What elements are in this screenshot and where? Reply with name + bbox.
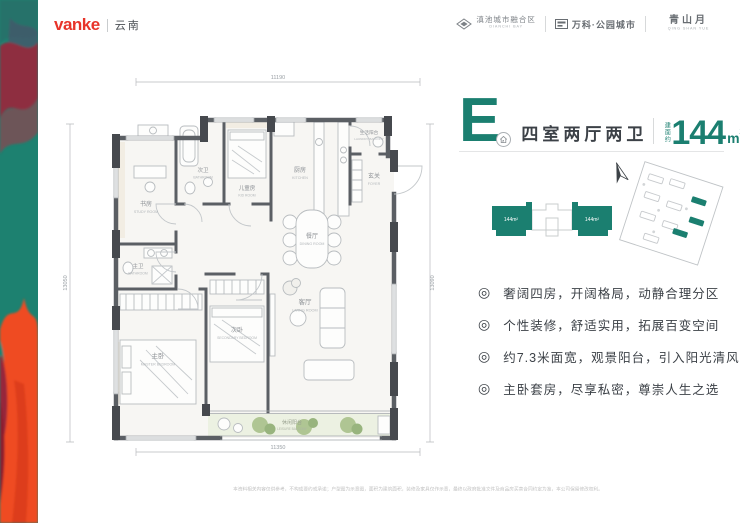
furniture-foyer-cabinet: [352, 160, 362, 202]
svg-text:主卫: 主卫: [132, 262, 144, 270]
svg-text:KID ROOM: KID ROOM: [238, 194, 255, 198]
dim-right: 13090: [430, 275, 436, 290]
vanke-logo: vanke: [54, 15, 100, 35]
unit-letter: E: [459, 94, 498, 148]
area-brand: 滇池城市融合区 DIANCHI BAY: [456, 16, 536, 32]
area-brand-title: 滇池城市融合区: [476, 16, 536, 25]
header-divider: [645, 16, 646, 32]
svg-text:儿童房: 儿童房: [239, 184, 256, 192]
project-logo-icon: [555, 19, 568, 29]
feature-text: 个性装修，舒适实用，拓展百变空间: [503, 315, 719, 334]
furniture-planter: [378, 416, 390, 434]
svg-text:SECONDARY BEDROOM: SECONDARY BEDROOM: [217, 336, 257, 340]
unit-headline: E 四室两厅两卫 建面约 144 m 2: [459, 94, 740, 148]
svg-text:餐厅: 餐厅: [306, 232, 318, 240]
svg-text:BATHROOM: BATHROOM: [193, 176, 213, 180]
north-arrow-icon: [611, 161, 629, 184]
dim-left: 13050: [63, 275, 69, 290]
svg-text:STUDY ROOM: STUDY ROOM: [134, 210, 158, 214]
disclaimer-text: 本资料相关内容仅供参考，不构成要约或承诺；户型图为示意图，面积为建筑面积，装修及…: [233, 485, 603, 492]
area-unit: m: [727, 130, 739, 146]
dim-top: 11190: [271, 75, 285, 81]
svg-text:BATHROOM: BATHROOM: [128, 272, 148, 276]
area-value: 144: [671, 119, 725, 147]
product-brand-title: 青山月: [669, 15, 708, 27]
bullet-icon: ◎: [478, 317, 490, 331]
feature-item: ◎ 约7.3米面宽，观景阳台，引入阳光清风: [478, 340, 740, 372]
feature-text: 约7.3米面宽，观景阳台，引入阳光清风: [503, 347, 739, 366]
area-prefix-label: 建面约: [663, 122, 669, 143]
dim-bottom: 11350: [271, 445, 286, 451]
feature-text: 奢阔四房，开阔格局，动静合理分区: [503, 283, 719, 302]
keyplan-left-label: 144m²: [504, 217, 519, 223]
svg-text:MASTER BEDROOM: MASTER BEDROOM: [141, 363, 176, 367]
furniture-kid-bed: [228, 130, 266, 178]
furniture-second-bed: [210, 280, 264, 362]
title-divider: [653, 118, 654, 144]
brand-divider: [107, 19, 108, 32]
svg-text:FOYER: FOYER: [368, 182, 381, 186]
svg-text:休闲阳台: 休闲阳台: [282, 419, 302, 426]
header-project-marks: 滇池城市融合区 DIANCHI BAY 万科·公园城市 青山月 QING SHA…: [456, 15, 722, 33]
feature-item: ◎ 主卧套房，尽享私密，尊崇人生之选: [478, 372, 740, 404]
svg-text:玄关: 玄关: [368, 172, 380, 180]
product-brand-subtitle: QING SHAN YUE: [668, 27, 710, 31]
bullet-icon: ◎: [478, 381, 490, 395]
header-divider: [545, 16, 546, 32]
svg-text:次卧: 次卧: [231, 326, 243, 334]
furniture-chair: [234, 424, 243, 433]
siteplan: [598, 158, 732, 266]
svg-text:客厅: 客厅: [299, 297, 313, 306]
svg-text:生活阳台: 生活阳台: [360, 129, 379, 136]
project-brand-title: 万科·公园城市: [572, 18, 636, 31]
svg-text:次卫: 次卫: [197, 166, 209, 174]
svg-text:LEISURE BALCONY: LEISURE BALCONY: [277, 427, 308, 431]
svg-text:书房: 书房: [140, 200, 152, 208]
unit-layout-label: 四室两厅两卫: [521, 120, 647, 145]
diamond-logo-icon: [456, 18, 472, 30]
svg-text:DINING ROOM: DINING ROOM: [300, 242, 325, 246]
product-brand: 青山月 QING SHAN YUE: [655, 15, 722, 33]
floorplan-drawing: 11190 11350 13050 13090 书房 STUDY ROOM 次卫…: [56, 54, 448, 468]
furniture-chair: [218, 418, 230, 430]
svg-text:LAUNDRY BALCONY: LAUNDRY BALCONY: [354, 137, 383, 141]
bullet-icon: ◎: [478, 349, 490, 363]
keyplan-left-unit: 144m²: [492, 202, 532, 236]
svg-text:LIVING ROOM: LIVING ROOM: [292, 309, 317, 313]
room-kid: 儿童房 KID ROOM: [238, 184, 255, 198]
brand-lockup: vanke 云南: [54, 15, 141, 35]
svg-text:KITCHEN: KITCHEN: [292, 176, 308, 180]
brand-region-label: 云南: [115, 17, 141, 33]
feature-text: 主卧套房，尽享私密，尊崇人生之选: [503, 379, 719, 398]
svg-text:主卧: 主卧: [152, 351, 166, 360]
area-brand-subtitle: DIANCHI BAY: [489, 25, 523, 29]
title-underline: [459, 151, 724, 152]
room-foyer: 玄关 FOYER: [368, 172, 381, 186]
feature-item: ◎ 个性装修，舒适实用，拓展百变空间: [478, 308, 740, 340]
feature-list: ◎ 奢阔四房，开阔格局，动静合理分区 ◎ 个性装修，舒适实用，拓展百变空间 ◎ …: [478, 276, 740, 404]
feature-item: ◎ 奢阔四房，开阔格局，动静合理分区: [478, 276, 740, 308]
artwork-painting: [0, 0, 38, 523]
project-brand: 万科·公园城市: [555, 18, 636, 31]
artwork-strip: [0, 0, 38, 523]
svg-text:厨房: 厨房: [294, 166, 306, 174]
disclaimer: 本资料相关内容仅供参考，不构成要约或承诺；户型图为示意图，面积为建筑面积，装修及…: [96, 479, 740, 497]
house-badge-icon: [496, 132, 511, 147]
room-kitchen: 厨房 KITCHEN: [292, 166, 308, 180]
bullet-icon: ◎: [478, 285, 490, 299]
siteplan-boundary: [620, 162, 723, 265]
